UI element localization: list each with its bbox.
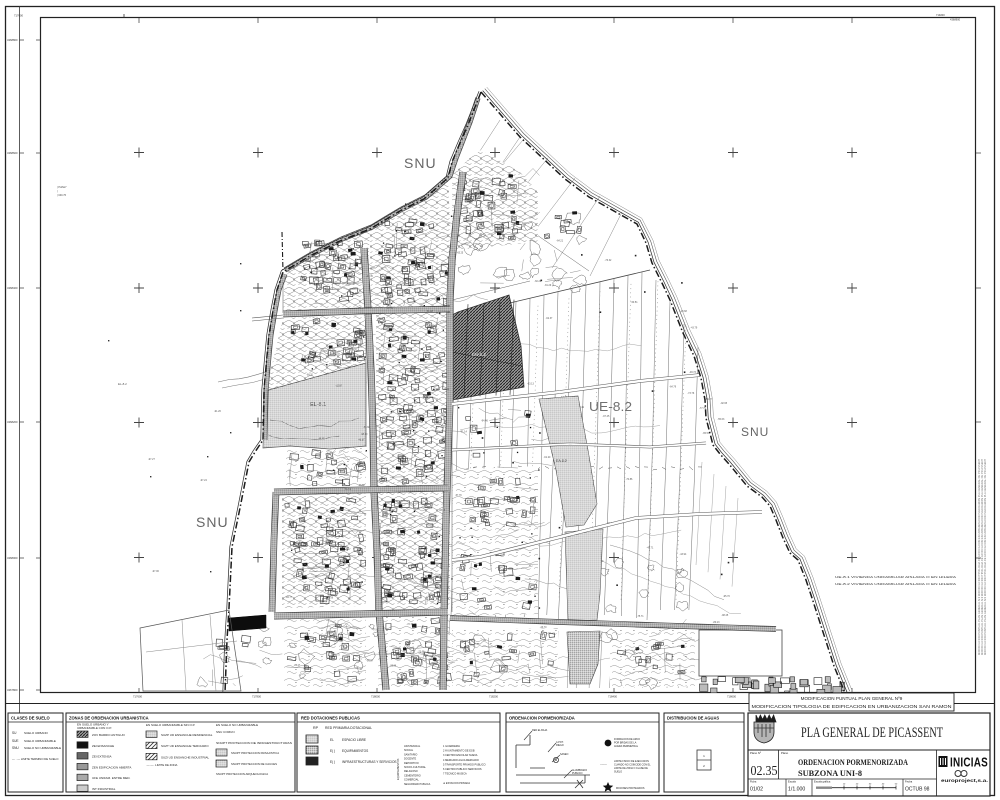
svg-text:SNUPT PROTECCION PAISAJISTICA: SNUPT PROTECCION PAISAJISTICA [231,751,279,755]
svg-text:SUELO URBANO: SUELO URBANO [24,731,49,735]
svg-text:-92.95: -92.95 [720,402,727,405]
svg-text:-40.62: -40.62 [443,389,450,391]
svg-text:-46.75: -46.75 [333,655,340,657]
svg-text:-43.79: -43.79 [690,327,697,330]
svg-text:-64.79: -64.79 [669,385,676,388]
svg-text:ZEI EXTENSA: ZEI EXTENSA [92,755,112,759]
svg-text:europroject,s.a.: europroject,s.a. [941,778,988,783]
svg-text:-95.90: -95.90 [361,434,368,436]
svg-text:Plano: Plano [781,751,789,755]
svg-text:| 040.76: | 040.76 [57,194,67,197]
svg-text:1/1.000: 1/1.000 [788,787,805,793]
svg-text:RELIGIOSO: RELIGIOSO [404,770,418,773]
svg-text:-63.13: -63.13 [527,383,534,386]
svg-text:★ ESTACION PRIVADA: ★ ESTACION PRIVADA [443,781,470,785]
svg-text:-48.83: -48.83 [337,536,344,538]
svg-text:Ficha: Ficha [750,780,757,784]
svg-text:-76.32: -76.32 [605,259,612,262]
svg-text:ASISTENCIAL: ASISTENCIAL [404,745,421,748]
svg-text:-62.37: -62.37 [546,317,553,320]
svg-text:EL-8.2: EL-8.2 [118,382,127,386]
svg-text:-82.77: -82.77 [286,597,293,599]
svg-text:4367800: 4367800 [7,688,18,692]
svg-text:·—·—· LIMITE DE ZONA: ·—·—· LIMITE DE ZONA [146,763,178,767]
svg-text:-45.71: -45.71 [647,547,654,550]
svg-text:SANEO: SANEO [560,753,569,756]
svg-text:-97.06: -97.06 [152,570,159,573]
svg-text:4368900: 4368900 [950,18,961,22]
svg-text:718400: 718400 [608,695,617,699]
svg-text:-43.94: -43.94 [680,553,687,556]
svg-text:E( ): E( ) [330,749,335,753]
svg-text:4368800: 4368800 [7,38,18,42]
svg-text:-77.93: -77.93 [338,360,345,362]
svg-text:-50.51: -50.51 [631,301,638,304]
svg-text:Fecha: Fecha [905,780,913,784]
svg-text:-68.20: -68.20 [306,375,313,377]
svg-text:SNU: SNU [404,155,437,171]
svg-text:RED DOTACIONES PUBLICAS: RED DOTACIONES PUBLICAS [301,716,360,721]
svg-text:INFRAESTRUCTURAS Y SERVICIOS: INFRAESTRUCTURAS Y SERVICIOS [342,760,397,764]
svg-text:-47.91: -47.91 [372,629,379,631]
svg-text:718600: 718600 [727,695,736,699]
svg-text:-97.24: -97.24 [200,479,207,482]
svg-text:MODIFICACION TIPOLOGIA DE EDIF: MODIFICACION TIPOLOGIA DE EDIFICACION EN… [752,704,952,709]
svg-text:717800: 717800 [252,695,261,699]
svg-text:PUBLICO: PUBLICO [572,772,583,775]
svg-text:UE-8.1 VIVIENDA UNIFAMILIAR: UE-8.1 VIVIENDA UNIFAMILIAR AISLADA O EN… [835,575,956,579]
svg-text:-73.76: -73.76 [687,392,694,395]
svg-text:ZOV BARRIO ANTIGUO: ZOV BARRIO ANTIGUO [92,733,126,737]
svg-text:-85.83: -85.83 [431,326,438,328]
svg-text:UFE UNIFAM. ENTRE MED.: UFE UNIFAM. ENTRE MED. [92,776,131,780]
svg-text:URBANIZABLE CON O.P.: URBANIZABLE CON O.P. [77,726,112,730]
svg-text:SANITARIO: SANITARIO [404,753,417,756]
svg-text:RIEGO: RIEGO [556,744,564,747]
svg-text:RP: RP [313,726,319,730]
svg-text:-97.35: -97.35 [366,276,373,278]
svg-text:Escala: Escala [788,780,796,784]
svg-text:-41.85: -41.85 [340,564,347,566]
svg-text:4 MERCADO AGUA MERCADO: 4 MERCADO AGUA MERCADO [443,759,479,762]
svg-text:SOCIO-CULTURAL: SOCIO-CULTURAL [404,766,427,769]
svg-text:EQUIPAMIENTOS: EQUIPAMIENTOS [396,758,400,780]
svg-text:EQUIPAMIENTOS: EQUIPAMIENTOS [342,749,368,753]
svg-text:-61.20: -61.20 [544,456,551,459]
svg-text:-65.53: -65.53 [703,432,710,435]
svg-text:UE-8.2: UE-8.2 [589,400,632,414]
svg-text:SUELO: SUELO [614,771,622,774]
svg-text:-91.26: -91.26 [214,410,221,413]
svg-text:SUZP UD ENSANCHE RESIDENCIAL: SUZP UD ENSANCHE RESIDENCIAL [161,733,213,737]
svg-text:ORDENACION PORMENORIZADA: ORDENACION PORMENORIZADA [509,716,575,721]
svg-text:EL-8.1: EL-8.1 [310,402,326,408]
svg-text:5 TRANSPORTE PRIVADO PUBLIC: 5 TRANSPORTE PRIVADO PUBLICO [443,763,486,766]
svg-text:ORDENACION PORMENORIZADA: ORDENACION PORMENORIZADA [798,757,909,767]
svg-text:DEPORTIVO: DEPORTIVO [404,762,419,765]
svg-text:4368400: 4368400 [7,286,18,290]
svg-text:EL: EL [330,738,334,742]
svg-text:ZEN EDIFICACION ABIERTA: ZEN EDIFICACION ABIERTA [92,765,131,769]
svg-text:SNU COMUN: SNU COMUN [216,730,235,734]
svg-text:-65.52: -65.52 [358,485,365,487]
svg-text:CLASES DE SUELO: CLASES DE SUELO [11,716,50,721]
svg-text:CEMENTERIO: CEMENTERIO [404,774,421,777]
svg-text:-85.27: -85.27 [294,665,301,667]
svg-text:717600: 717600 [14,14,23,18]
svg-text:-80.13: -80.13 [713,621,720,624]
svg-text:Escala gráfica: Escala gráfica [814,780,831,784]
svg-text:4368600: 4368600 [7,151,18,155]
svg-text:INT INDUSTRIAL: INT INDUSTRIAL [92,787,116,791]
svg-text:-43.68: -43.68 [680,310,687,313]
svg-text:-97.45: -97.45 [603,415,610,418]
svg-text:-55.86: -55.86 [390,665,397,667]
svg-text:6 CENTRO PUBLICO SERVICIOS: 6 CENTRO PUBLICO SERVICIOS [443,768,482,771]
svg-text:-48.45: -48.45 [318,438,325,440]
svg-text:| PolNo7: | PolNo7 [57,186,67,189]
svg-text:E( ): E( ) [330,760,335,764]
svg-text:717600: 717600 [133,695,142,699]
svg-text:-73.68: -73.68 [418,652,425,654]
svg-text:4368200: 4368200 [7,420,18,424]
svg-text:EA-8.2: EA-8.2 [556,459,567,463]
svg-text:COMERCIAL: COMERCIAL [404,779,419,782]
svg-text:3 CENTRO ESCOLAR NUEVA: 3 CENTRO ESCOLAR NUEVA [443,754,478,757]
svg-text:-55.63: -55.63 [718,418,725,421]
svg-text:2 AYUNTAMIENTO DE EGB: 2 AYUNTAMIENTO DE EGB [443,750,475,753]
svg-text:-70.86: -70.86 [626,478,633,481]
svg-text:-74.37: -74.37 [333,354,340,356]
svg-text:-97.27: -97.27 [148,458,155,461]
svg-text:INICIAS: INICIAS [950,756,988,770]
svg-text:-51.60: -51.60 [363,427,370,429]
svg-text:-57.79: -57.79 [455,495,462,497]
svg-text:SUZI UD ENSANCHE INDUSTRIAL: SUZI UD ENSANCHE INDUSTRIAL [161,755,210,759]
svg-text:01/02: 01/02 [750,787,763,793]
svg-text:-82.87: -82.87 [336,386,343,388]
svg-text:-72.70: -72.70 [407,624,414,626]
svg-text:-93.56: -93.56 [439,510,446,512]
svg-text:EN SUELO URBANIZABLE SIN O.P.: EN SUELO URBANIZABLE SIN O.P. [146,723,195,727]
svg-text:RED EL.BAJA: RED EL.BAJA [532,729,548,732]
svg-text:MODIFICACION PUNTUAL PLAN GENE: MODIFICACION PUNTUAL PLAN GENERAL Nº9 [801,696,903,701]
svg-text:RED PRIMARIA DOTACIONAL: RED PRIMARIA DOTACIONAL [325,726,372,730]
svg-text:-85.96: -85.96 [327,597,334,599]
svg-text:SNU: SNU [196,514,229,530]
svg-text:-61.91: -61.91 [344,489,351,491]
svg-text:SNUPT PROTECCION DE INFRAESTRU: SNUPT PROTECCION DE INFRAESTRUCTURAS [216,741,292,745]
svg-text:EN-8.2: EN-8.2 [472,352,487,357]
svg-text:SU: SU [12,731,17,735]
svg-text:-75.71: -75.71 [637,615,644,618]
svg-text:MODIFICACION PUNTUAL PLAN GENE: MODIFICACION PUNTUAL PLAN GENERAL N.9 MO… [984,458,987,655]
svg-text:ESPACIO LIBRE: ESPACIO LIBRE [342,738,366,742]
svg-text:SNU: SNU [741,425,769,439]
svg-text:-47.17: -47.17 [382,285,389,287]
svg-text:718000: 718000 [371,695,380,699]
svg-text:718200: 718200 [489,695,498,699]
svg-text:ZONAS DE ORDENACION URBANISTIC: ZONAS DE ORDENACION URBANISTICA [69,716,149,721]
svg-text:-64.21: -64.21 [556,240,563,243]
svg-text:-53.27: -53.27 [705,398,712,401]
svg-text:-65.25: -65.25 [457,253,464,255]
svg-text:PLA GENERAL DE PICASSENT: PLA GENERAL DE PICASSENT [801,725,943,741]
svg-text:MOJONES PROTEGIDOS: MOJONES PROTEGIDOS [616,787,645,790]
svg-text:-96.37: -96.37 [366,661,373,663]
svg-text:-48.87: -48.87 [358,440,365,442]
svg-text:SEGURIDAD PUBLICA: SEGURIDAD PUBLICA [404,783,431,786]
svg-text:SUBZONA UNI-8: SUBZONA UNI-8 [798,768,862,778]
svg-text:SUZT UD ENSANCHE TERCIARIO: SUZT UD ENSANCHE TERCIARIO [161,744,209,748]
svg-text:Plano Nº: Plano Nº [750,751,761,755]
svg-text:SNU: SNU [12,746,19,750]
svg-text:ACERA PERIMETRAL: ACERA PERIMETRAL [614,745,639,748]
svg-text:DOCENTE: DOCENTE [404,758,417,761]
svg-text:SOCIAL: SOCIAL [404,749,414,752]
svg-text:02.35: 02.35 [751,763,778,778]
svg-text:UE-8.2 VIVIENDA UNIFAMILIAR: UE-8.2 VIVIENDA UNIFAMILIAR AISLADA O EN… [835,582,956,586]
svg-text:SUELO NO URBANIZABLE: SUELO NO URBANIZABLE [24,746,61,750]
svg-text:-95.70: -95.70 [723,595,730,598]
svg-text:7 TECNICO MUSICA: 7 TECNICO MUSICA [443,773,467,776]
svg-text:OCTUB 98: OCTUB 98 [905,787,930,793]
svg-text:--------: -------- [600,763,607,766]
svg-text:SNUPT PROTECCION DE CAUCES: SNUPT PROTECCION DE CAUCES [231,762,277,766]
svg-text:SUELO URBANIZABLE: SUELO URBANIZABLE [24,739,56,743]
svg-text:— · — LIMITE TERMINO DE SUELO: — · — LIMITE TERMINO DE SUELO [12,757,59,761]
svg-text:SUE: SUE [12,739,19,743]
svg-text:EN SUELO NO URBANIZABLE: EN SUELO NO URBANIZABLE [216,723,258,727]
svg-text:SNUPT PROTECCION ARQUEOLOGICA: SNUPT PROTECCION ARQUEOLOGICA [216,772,268,776]
svg-text:4368000: 4368000 [7,556,18,560]
svg-text:719200: 719200 [936,13,945,17]
svg-text:-94.46: -94.46 [481,420,488,423]
svg-text:-81.29: -81.29 [544,284,551,287]
svg-text:-98.45: -98.45 [721,614,728,617]
svg-text:DISTRIBUCION DE AGUAS: DISTRIBUCION DE AGUAS [667,716,719,721]
svg-text:-59.42: -59.42 [386,308,393,310]
svg-text:ZEI ENSANCHE: ZEI ENSANCHE [92,744,114,748]
svg-text:-56.32: -56.32 [426,311,433,313]
svg-text:1 GUARDERIA: 1 GUARDERIA [443,745,460,748]
